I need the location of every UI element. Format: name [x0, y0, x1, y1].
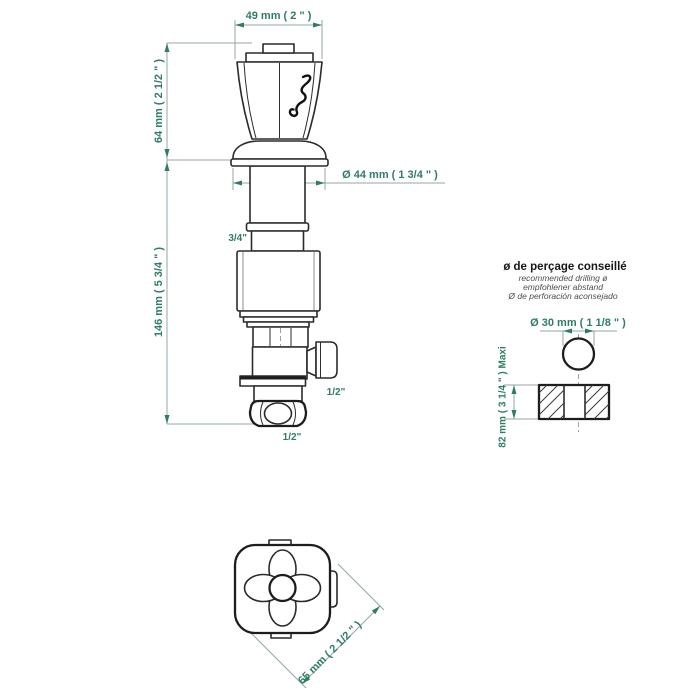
- valve-upper-body: [237, 251, 320, 311]
- handle-cap-small: [263, 44, 294, 53]
- handle-center-circle: [270, 575, 296, 601]
- handle-skirt: [233, 141, 326, 159]
- collar-ring: [247, 223, 309, 231]
- valve-technical-drawing: 49 mm ( 2 " ) 64 mm ( 2 1/2 " ) 146 mm (…: [0, 0, 700, 700]
- valve-lower-body: [253, 347, 308, 379]
- handle-cap-wide: [246, 53, 313, 62]
- inlet-neck: [254, 386, 302, 401]
- union-nut-face: [265, 403, 292, 424]
- side-outlet-cap: [316, 342, 337, 378]
- stem-cylinder: [250, 166, 305, 223]
- thread-label-side-1-2: 1/2": [327, 387, 346, 398]
- technical-drawing-page: 49 mm ( 2 " ) 64 mm ( 2 1/2 " ) 146 mm (…: [0, 0, 700, 700]
- thread-label-bottom-1-2: 1/2": [283, 432, 302, 443]
- dim-label-30mm: Ø 30 mm ( 1 1/8 " ): [530, 317, 626, 329]
- dim-label-64mm: 64 mm ( 2 1/2 " ): [153, 59, 165, 143]
- dim-label-82mm-maxi: 82 mm ( 3 1/4 " ) Maxi: [498, 346, 509, 448]
- thread-section: [252, 231, 304, 251]
- step-disc-1: [240, 311, 317, 317]
- dim-label-44mm: Ø 44 mm ( 1 3/4 " ): [342, 169, 438, 181]
- skirt-rim: [231, 159, 328, 166]
- drill-hole-circle: [563, 339, 594, 370]
- thread-label-3-4: 3/4": [228, 233, 247, 244]
- top-view: [235, 540, 337, 638]
- drilling-note-sub-es: Ø de perforación aconsejado: [507, 291, 617, 301]
- dimension-arrows: [165, 23, 595, 685]
- dim-label-146mm: 146 mm ( 5 3/4 " ): [153, 247, 165, 338]
- drilling-note-title: ø de perçage conseillé: [503, 261, 626, 273]
- side-outlet-cone: [307, 347, 316, 376]
- dim-label-49mm: 49 mm ( 2 " ): [246, 10, 312, 22]
- labels: 49 mm ( 2 " ) 64 mm ( 2 1/2 " ) 146 mm (…: [153, 10, 627, 687]
- drilling-detail: [539, 339, 609, 420]
